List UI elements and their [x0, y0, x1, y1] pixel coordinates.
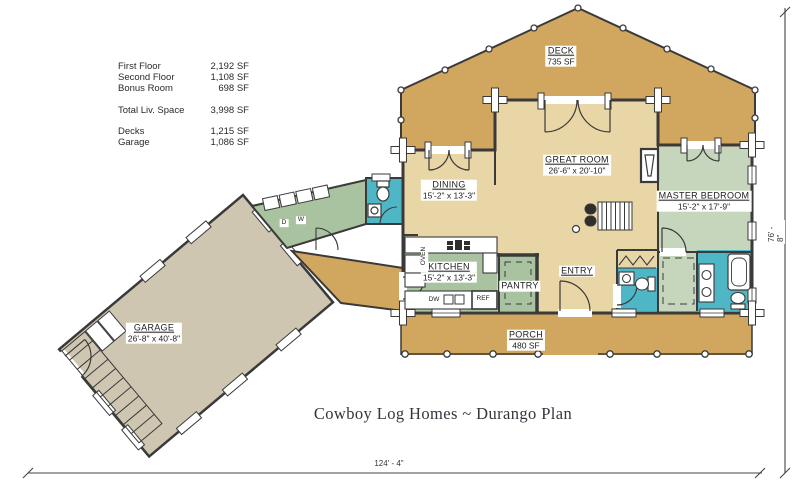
- dishwasher-label: DW: [427, 296, 442, 304]
- vanity-icon: [699, 264, 714, 302]
- refrigerator-label: REF: [475, 295, 492, 303]
- porch-label: PORCH 480 SF: [507, 330, 545, 351]
- table-row: First Floor2,192 SF: [118, 61, 249, 72]
- area-summary-table: First Floor2,192 SF Second Floor1,108 SF…: [118, 61, 249, 148]
- deck-label: DECK 735 SF: [545, 46, 576, 67]
- table-row: Bonus Room698 SF: [118, 83, 249, 94]
- hall-bath-sink-icon: [368, 204, 381, 217]
- entry-bath-toilet-icon: [636, 277, 656, 291]
- pantry-label: PANTRY: [499, 281, 540, 292]
- table-row: Garage1,086 SF: [118, 137, 249, 148]
- dining-label: DINING 15'-2" x 13'-3": [421, 180, 477, 201]
- stairs-icon: [585, 202, 632, 230]
- oven-label: OVEN: [420, 245, 428, 267]
- overall-height-dimension: 76' - 8": [767, 220, 785, 244]
- entry-label: ENTRY: [559, 266, 595, 277]
- table-row: Decks1,215 SF: [118, 126, 249, 137]
- master-bedroom-label: MASTER BEDROOM 15'-2" x 17'-9": [657, 191, 752, 212]
- kitchen-label: KITCHEN 15'-2" x 13'-3": [421, 262, 477, 283]
- table-row: Second Floor1,108 SF: [118, 72, 249, 83]
- floor-plan-page: First Floor2,192 SF Second Floor1,108 SF…: [0, 0, 800, 491]
- entry-bath-sink-icon: [619, 272, 634, 285]
- hall-bath-toilet-icon: [377, 181, 389, 201]
- bathtub-icon: [728, 254, 750, 290]
- dryer-label: D: [280, 219, 289, 227]
- great-room-label: GREAT ROOM 26'-6" x 20'-10": [543, 155, 611, 176]
- table-row: Total Liv. Space3,998 SF: [118, 105, 249, 116]
- washer-label: W: [296, 216, 306, 224]
- stove-icon: [447, 240, 470, 250]
- post-icon: [573, 226, 580, 233]
- garage-label: GARAGE 26'-8" x 40'-8": [126, 323, 182, 344]
- fireplace-icon: [641, 149, 658, 182]
- walkin-closet-floor: [658, 252, 697, 311]
- hall-bath-window: [372, 174, 390, 181]
- overall-width-dimension: 124' - 4": [372, 459, 405, 468]
- porch-area: [401, 313, 752, 355]
- plan-title: Cowboy Log Homes ~ Durango Plan: [314, 404, 572, 424]
- master-toilet-icon: [731, 293, 745, 310]
